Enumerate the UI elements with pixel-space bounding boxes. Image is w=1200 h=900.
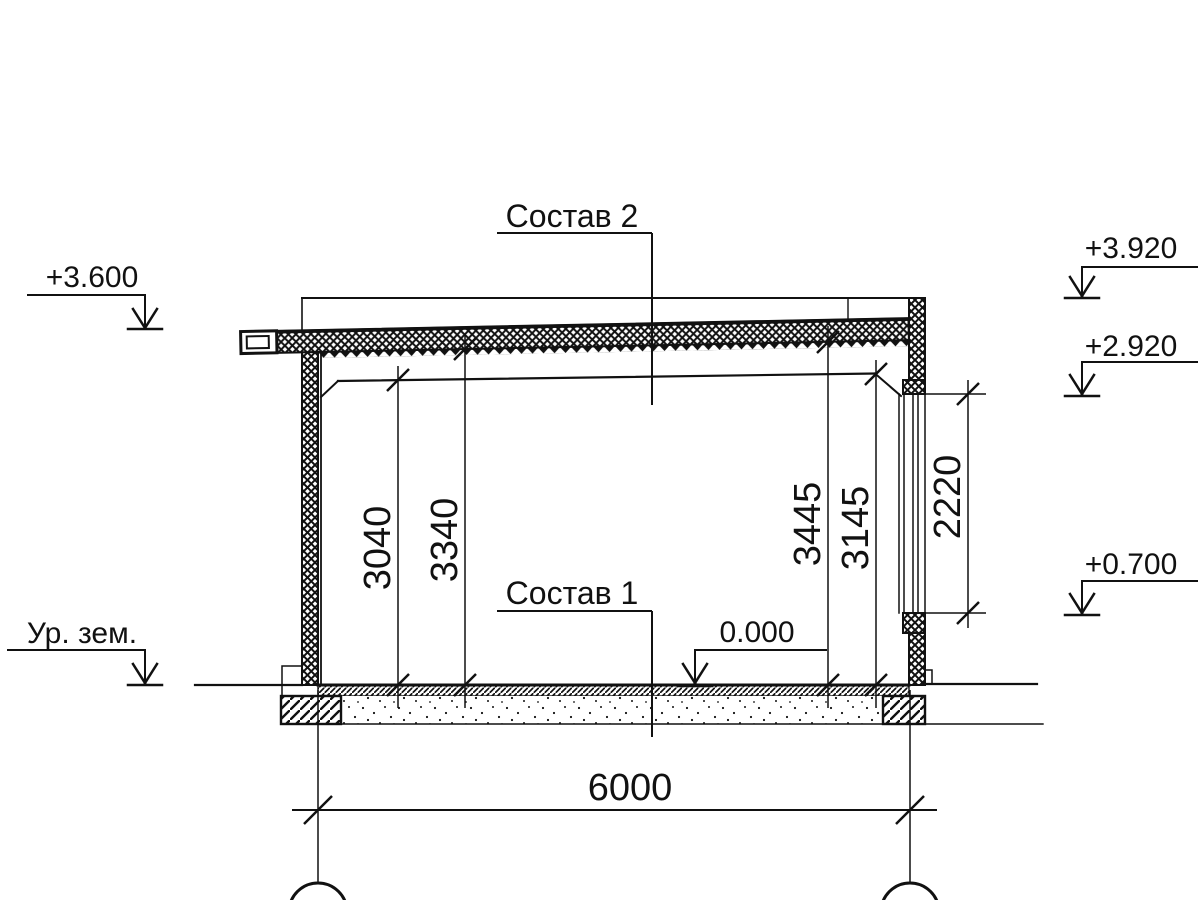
elevation-value: +3.600 — [46, 261, 139, 294]
eave-fascia-inner — [247, 336, 269, 348]
dim-text: 3040 — [357, 506, 399, 591]
elevation-marks: +3.600 Ур. зем. 0.000 — [8, 232, 1197, 686]
label-roof-composition: Состав 2 — [497, 198, 652, 405]
grid-bubble-left — [289, 883, 347, 900]
dim-text: 3340 — [424, 498, 466, 583]
foundation-left — [281, 696, 341, 724]
elevation-value: 0.000 — [719, 616, 794, 649]
dim-3145: 3145 — [835, 360, 887, 708]
dimensions: 6000 3040 3340 3445 3145 — [292, 326, 986, 824]
right-wall-lower-section — [909, 633, 925, 685]
elevation-mark-opening-sill-right: +0.700 — [1065, 548, 1197, 615]
building-section-drawing: 6000 3040 3340 3445 3145 — [0, 0, 1200, 900]
elevation-value: +3.920 — [1085, 232, 1178, 265]
ground-level-label: Ур. зем. — [27, 617, 137, 650]
elevation-mark-parapet-right: +3.920 — [1065, 232, 1197, 298]
right-wall-lintel-block — [903, 380, 925, 394]
right-wall-upper-section — [909, 298, 925, 380]
beam-haunch-left — [321, 381, 338, 397]
dim-3340: 3340 — [424, 334, 476, 708]
left-wall-plinth-step — [282, 666, 302, 696]
building-structure — [195, 298, 1043, 724]
dim-text-span: 6000 — [588, 767, 673, 809]
label-text: Состав 2 — [506, 198, 639, 234]
roof-beam-soffit — [338, 374, 875, 382]
dim-text: 3145 — [835, 486, 877, 571]
dim-text: 3445 — [787, 482, 829, 567]
elevation-value: +2.920 — [1085, 330, 1178, 363]
grid-bubble-right — [881, 883, 939, 900]
dim-span-6000: 6000 — [292, 767, 937, 824]
beam-haunch-right — [875, 374, 901, 397]
right-wall-opening-frame — [899, 394, 925, 613]
label-text: Состав 1 — [506, 575, 639, 611]
elevation-mark-roof-eave-left: +3.600 — [28, 261, 162, 329]
sand-base-layer — [330, 696, 883, 724]
right-wall-plinth-step — [925, 670, 932, 684]
elevation-mark-floor-zero: 0.000 — [678, 616, 826, 686]
left-wall-section — [302, 338, 318, 685]
right-wall-sill-block — [903, 613, 925, 633]
composition-labels: Состав 2 Состав 1 — [497, 198, 652, 737]
dim-3040: 3040 — [357, 366, 409, 708]
dim-2220: 2220 — [925, 380, 986, 628]
elevation-mark-beam-right: +2.920 — [1065, 330, 1197, 396]
dim-text: 2220 — [927, 455, 969, 540]
foundation-right — [883, 696, 925, 724]
drawing-sheet: 6000 3040 3340 3445 3145 — [0, 0, 1200, 900]
elevation-mark-ground-level: Ур. зем. — [8, 617, 162, 685]
roof-assembly — [241, 318, 909, 359]
elevation-value: +0.700 — [1085, 548, 1178, 581]
